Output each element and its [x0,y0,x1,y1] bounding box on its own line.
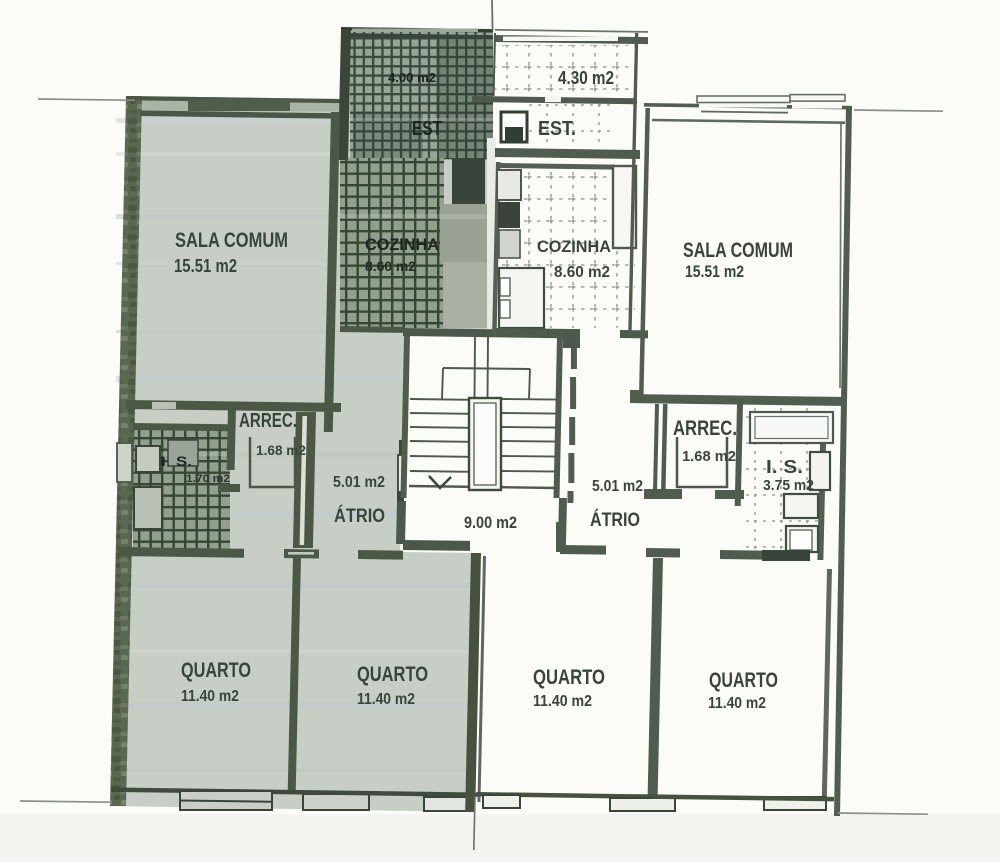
svg-text:1.70 m2: 1.70 m2 [186,473,230,485]
svg-text:S.: S. [176,453,192,469]
svg-text:11.40 m2: 11.40 m2 [708,695,766,712]
svg-text:15.51 m2: 15.51 m2 [685,262,744,281]
svg-text:COZINHA: COZINHA [365,235,439,254]
svg-text:4.30 m2: 4.30 m2 [558,68,614,88]
svg-text:15.51 m2: 15.51 m2 [174,256,237,276]
svg-text:8.60 m2: 8.60 m2 [554,264,610,281]
svg-text:11.40 m2: 11.40 m2 [357,691,415,708]
svg-text:4.00 m2: 4.00 m2 [388,70,436,85]
svg-text:EST: EST [412,118,442,140]
svg-text:EST.: EST. [538,118,576,140]
svg-text:SALA COMUM: SALA COMUM [683,239,793,262]
svg-text:9.00 m2: 9.00 m2 [464,513,517,532]
svg-text:1.68 m2: 1.68 m2 [256,442,306,458]
svg-text:SALA COMUM: SALA COMUM [175,229,288,252]
svg-text:QUARTO: QUARTO [533,666,605,689]
svg-text:QUARTO: QUARTO [709,669,778,692]
svg-text:I: I [160,454,166,469]
svg-text:5.01 m2: 5.01 m2 [592,478,643,495]
svg-text:11.40 m2: 11.40 m2 [533,693,592,710]
svg-text:8.60 m2: 8.60 m2 [365,258,416,274]
svg-text:11.40 m2: 11.40 m2 [181,688,239,705]
svg-text:ÁTRIO: ÁTRIO [590,509,640,531]
svg-text:1.68 m2: 1.68 m2 [682,448,736,465]
svg-text:QUARTO: QUARTO [181,659,251,682]
svg-text:ARREC.: ARREC. [239,410,297,432]
svg-text:QUARTO: QUARTO [357,663,428,686]
svg-text:COZINHA: COZINHA [537,237,611,256]
svg-text:I. S.: I. S. [766,457,803,477]
svg-text:ÁTRIO: ÁTRIO [334,505,385,527]
svg-text:3.75 m2: 3.75 m2 [763,477,814,494]
svg-text:ARREC.: ARREC. [673,417,737,440]
svg-text:5.01 m2: 5.01 m2 [333,474,385,491]
